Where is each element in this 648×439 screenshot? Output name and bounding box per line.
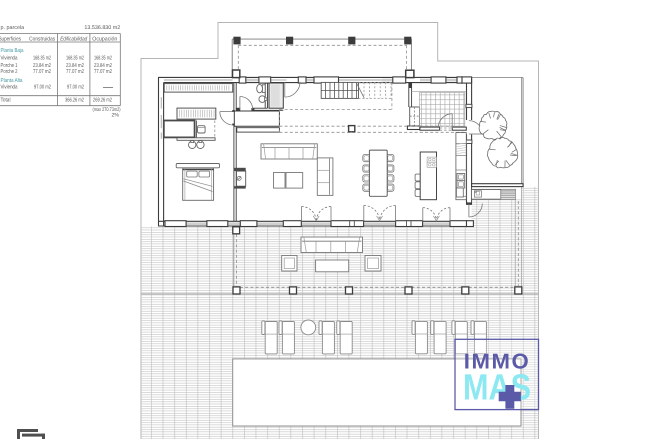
svg-text:77.07 m2: 77.07 m2: [94, 69, 112, 75]
svg-text:168.35 m2: 168.35 m2: [33, 56, 51, 62]
svg-text:Vivienda: Vivienda: [1, 84, 19, 91]
svg-text:Planta Baja: Planta Baja: [1, 47, 25, 54]
svg-text:366.26 m2: 366.26 m2: [65, 98, 84, 104]
svg-text:23.84 m2: 23.84 m2: [33, 63, 51, 69]
svg-text:Construidas: Construidas: [29, 35, 55, 42]
svg-text:Planta Alta: Planta Alta: [1, 77, 24, 84]
svg-text:168.35 m2: 168.35 m2: [94, 56, 112, 62]
svg-text:Porche 1: Porche 1: [1, 62, 18, 69]
svg-text:Vivienda: Vivienda: [1, 55, 19, 62]
svg-text:269.26 m2: 269.26 m2: [93, 98, 112, 104]
svg-text:23.84 m2: 23.84 m2: [94, 63, 112, 69]
svg-text:13.536.830 m2: 13.536.830 m2: [84, 25, 120, 31]
svg-text:23.84 m2: 23.84 m2: [66, 63, 84, 69]
svg-text:p. parcela: p. parcela: [1, 25, 25, 31]
svg-text:97.00 m2: 97.00 m2: [67, 85, 84, 91]
svg-text:77.07 m2: 77.07 m2: [33, 69, 51, 75]
svg-text:2%: 2%: [112, 113, 120, 119]
svg-text:168.35 m2: 168.35 m2: [66, 56, 84, 62]
svg-text:Total: Total: [1, 97, 11, 104]
svg-text:Ocupación: Ocupación: [92, 35, 117, 42]
svg-text:97.00 m2: 97.00 m2: [34, 85, 51, 91]
svg-text:Superficies: Superficies: [0, 35, 21, 42]
svg-text:Porche 2: Porche 2: [1, 68, 18, 75]
svg-text:Edificabilidad: Edificabilidad: [60, 35, 88, 42]
svg-text:77.07 m2: 77.07 m2: [66, 69, 84, 75]
